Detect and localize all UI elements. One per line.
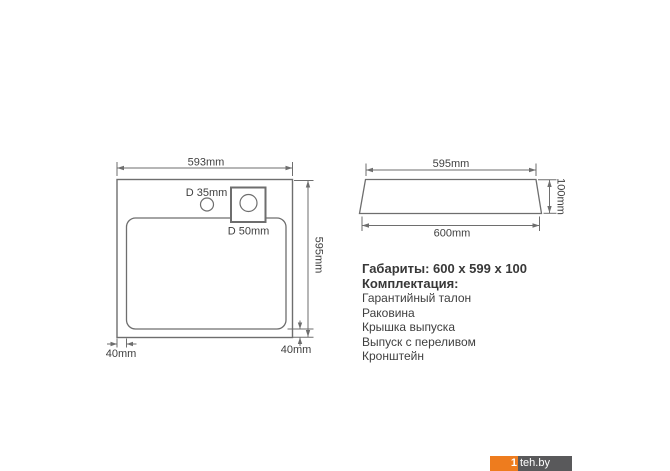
kit-title: Комплектация: [362,277,527,292]
profile-height-label: 100mm [555,178,567,215]
specs-block: Габариты: 600 x 599 x 100 Комплектация: … [362,262,527,364]
top-width-label: 593mm [188,157,225,169]
arrowhead-right [533,223,540,227]
right-offset-label: 40mm [281,344,312,356]
arrowhead-left [362,223,369,227]
left-offset-dimension [107,339,137,348]
profile-bottom-width-label: 600mm [434,228,471,240]
arrowhead-down [306,330,310,337]
side-view-diagram: 595mm 100mm 600mm [360,158,567,240]
top-view-diagram: 593mm 595mm D 35mm D 50mm 40mm 40mm [106,157,325,361]
technical-drawing: 593mm 595mm D 35mm D 50mm 40mm 40mm [0,0,670,471]
left-offset-label: 40mm [106,348,137,360]
watermark-site-text: teh.by [518,456,572,471]
side-height-label: 595mm [313,237,325,274]
kit-item: Раковина [362,306,527,321]
kit-item: Гарантийный талон [362,291,527,306]
drain-hole-label: D 50mm [228,226,270,238]
profile-top-width-label: 595mm [433,158,470,170]
watermark-logo: 1 teh.by [490,456,572,471]
faucet-hole-label: D 35mm [186,187,228,199]
drain-box [231,188,266,223]
arrowhead-left [366,168,373,172]
overall-dimensions-text: Габариты: 600 x 599 x 100 [362,262,527,277]
arrowhead-left [117,166,124,170]
arrowhead-down [298,323,302,330]
side-height-dimension [293,181,314,338]
kit-item: Крышка выпуска [362,320,527,335]
watermark-prefix: 1 [511,456,517,471]
arrowhead-right [111,342,118,346]
drawing-canvas: 593mm 595mm D 35mm D 50mm 40mm 40mm [0,0,670,471]
arrowhead-right [286,166,293,170]
arrowhead-left [127,342,134,346]
arrowhead-up [306,181,310,188]
arrowhead-right [529,168,536,172]
watermark-orange-block: 1 [490,456,518,471]
kit-item: Выпуск с переливом [362,335,527,350]
sink-profile-outline [360,180,542,214]
kit-item: Кронштейн [362,349,527,364]
arrowhead-down [547,206,551,213]
arrowhead-up [547,180,551,187]
